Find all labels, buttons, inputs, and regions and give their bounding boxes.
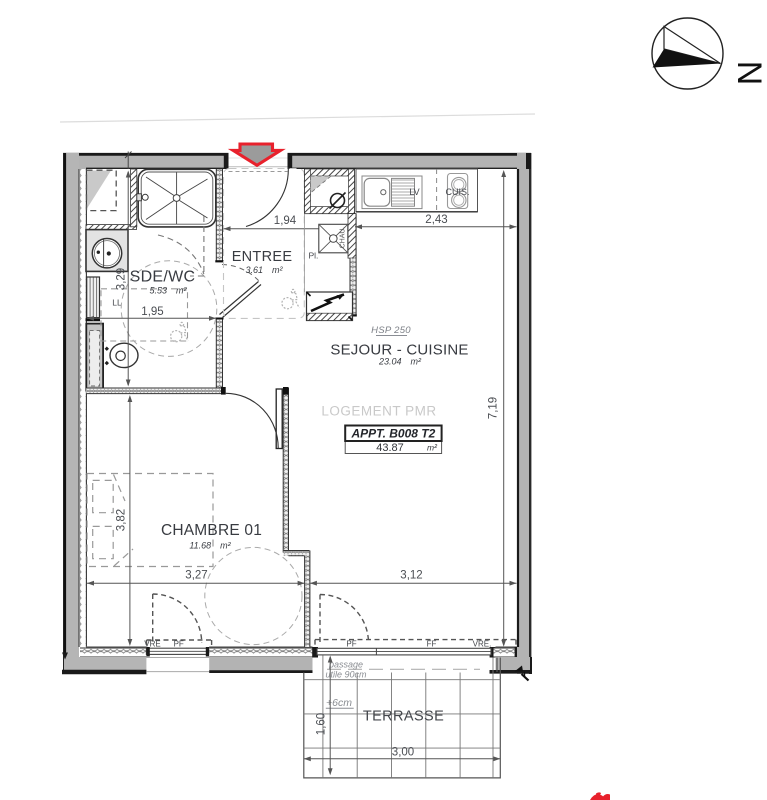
svg-text:3,29: 3,29 bbox=[116, 268, 128, 290]
svg-text:LOGEMENT PMR: LOGEMENT PMR bbox=[321, 404, 436, 419]
svg-text:utile 90cm: utile 90cm bbox=[325, 670, 367, 680]
svg-text:SDE/WC: SDE/WC bbox=[130, 269, 196, 286]
svg-text:VRE.: VRE. bbox=[473, 640, 492, 649]
svg-text:1,95: 1,95 bbox=[141, 306, 163, 318]
svg-text:3,12: 3,12 bbox=[400, 570, 422, 582]
svg-text:CHAU.: CHAU. bbox=[340, 227, 347, 249]
svg-text:3.61 m²: 3.61 m² bbox=[245, 265, 283, 275]
svg-text:LL: LL bbox=[112, 298, 122, 308]
svg-text:APPT. B008 T2: APPT. B008 T2 bbox=[350, 427, 435, 441]
svg-text:1,94: 1,94 bbox=[274, 215, 297, 227]
svg-text:m²: m² bbox=[427, 443, 438, 453]
svg-text:N: N bbox=[730, 61, 767, 86]
svg-text:PF: PF bbox=[174, 640, 184, 649]
svg-text:passage: passage bbox=[328, 660, 363, 670]
svg-text:23.04 m²: 23.04 m² bbox=[378, 357, 422, 367]
svg-text:2,43: 2,43 bbox=[425, 214, 447, 226]
svg-text:ENTREE: ENTREE bbox=[232, 249, 293, 265]
svg-text:3,00: 3,00 bbox=[392, 747, 414, 759]
svg-text:7,19: 7,19 bbox=[488, 397, 500, 419]
svg-text:3,82: 3,82 bbox=[116, 509, 128, 531]
svg-text:LV: LV bbox=[409, 187, 419, 197]
svg-text:HSP 250: HSP 250 bbox=[371, 325, 411, 336]
svg-text:PF: PF bbox=[346, 640, 356, 649]
svg-text:43.87: 43.87 bbox=[376, 442, 404, 454]
svg-text:TERRASSE: TERRASSE bbox=[363, 709, 444, 725]
svg-text:CHAMBRE 01: CHAMBRE 01 bbox=[161, 522, 262, 539]
svg-text:1,60: 1,60 bbox=[316, 713, 328, 735]
svg-text:VRE: VRE bbox=[144, 640, 160, 649]
svg-text:5.53 m²: 5.53 m² bbox=[149, 286, 187, 296]
svg-text:Pl.: Pl. bbox=[309, 251, 319, 261]
svg-text:CUIS.: CUIS. bbox=[445, 187, 469, 197]
svg-text:11.68 m²: 11.68 m² bbox=[189, 541, 231, 551]
svg-text:3,27: 3,27 bbox=[185, 570, 207, 582]
svg-text:FF: FF bbox=[427, 640, 437, 649]
